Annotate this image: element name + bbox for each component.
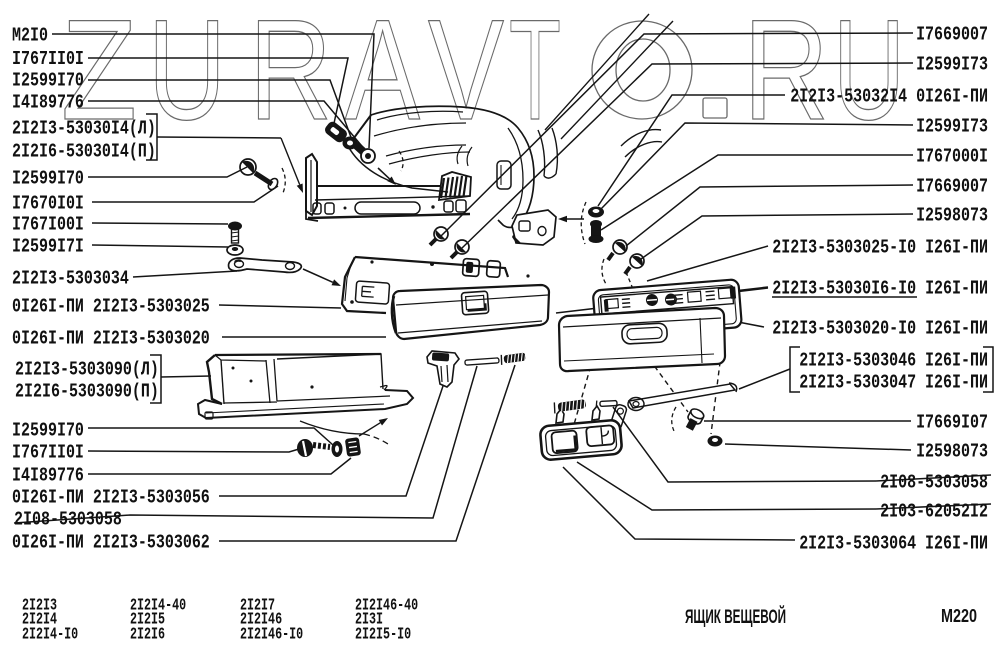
svg-text:I4I89776: I4I89776 (12, 466, 84, 487)
svg-text:U: U (148, 0, 226, 150)
svg-text:I7670I0I: I7670I0I (12, 194, 84, 215)
svg-text:2I2I6-53030I4(П): 2I2I6-53030I4(П) (12, 142, 156, 163)
svg-text:М2I0: М2I0 (12, 26, 48, 47)
svg-text:ЯЩИК ВЕЩЕВОЙ: ЯЩИК ВЕЩЕВОЙ (685, 605, 786, 628)
svg-text:0I26I-ПИ 2I2I3-5303020: 0I26I-ПИ 2I2I3-5303020 (12, 329, 210, 350)
svg-text:I767II0I: I767II0I (12, 443, 84, 464)
svg-text:2I2I4-I0: 2I2I4-I0 (22, 626, 78, 644)
svg-text:I2599I73: I2599I73 (916, 55, 988, 76)
svg-text:I7669007: I7669007 (916, 177, 988, 198)
svg-text:I2599I73: I2599I73 (916, 117, 988, 138)
svg-text:М220: М220 (941, 605, 977, 627)
svg-text:I767I00I: I767I00I (12, 215, 84, 236)
svg-text:V: V (428, 0, 504, 150)
svg-text:I4I89776: I4I89776 (12, 93, 84, 114)
svg-text:I767000I: I767000I (916, 147, 988, 168)
svg-text:I2599I70: I2599I70 (12, 169, 84, 190)
svg-text:2I2I5-I0: 2I2I5-I0 (355, 626, 411, 644)
svg-text:I2599I7I: I2599I7I (12, 237, 84, 258)
svg-text:I7669I07: I7669I07 (916, 413, 988, 434)
svg-text:0I26I-ПИ 2I2I3-5303062: 0I26I-ПИ 2I2I3-5303062 (12, 533, 210, 554)
svg-text:2I2I46-I0: 2I2I46-I0 (240, 626, 303, 644)
svg-text:2I2I3-5303064 I26I-ПИ: 2I2I3-5303064 I26I-ПИ (799, 534, 988, 555)
svg-text:I767II0I: I767II0I (12, 49, 84, 70)
svg-text:2I03-62052I2: 2I03-62052I2 (880, 502, 988, 523)
svg-text:0I26I-ПИ 2I2I3-5303025: 0I26I-ПИ 2I2I3-5303025 (12, 297, 210, 318)
svg-text:I2599I70: I2599I70 (12, 421, 84, 442)
svg-text:I2598073: I2598073 (916, 206, 988, 227)
svg-text:U: U (833, 0, 905, 150)
svg-text:I2599I70: I2599I70 (12, 71, 84, 92)
svg-text:2I2I3-5303020-I0 I26I-ПИ: 2I2I3-5303020-I0 I26I-ПИ (772, 319, 988, 340)
svg-text:2I2I3-5303025-I0 I26I-ПИ: 2I2I3-5303025-I0 I26I-ПИ (772, 238, 988, 259)
svg-text:2I2I6: 2I2I6 (130, 626, 165, 644)
svg-text:I7669007: I7669007 (916, 25, 988, 46)
svg-text:2I2I3-53032I4 0I26I-ПИ: 2I2I3-53032I4 0I26I-ПИ (790, 87, 988, 108)
svg-text:2I2I3-5303047 I26I-ПИ: 2I2I3-5303047 I26I-ПИ (799, 373, 988, 394)
svg-text:I2598073: I2598073 (916, 442, 988, 463)
svg-text:2I2I3-5303034: 2I2I3-5303034 (12, 269, 129, 290)
svg-text:R: R (743, 0, 829, 150)
svg-text:2I08-5303058: 2I08-5303058 (14, 510, 122, 531)
svg-text:2I08-5303058: 2I08-5303058 (880, 473, 988, 494)
svg-text:2I2I3-5303090(Л): 2I2I3-5303090(Л) (15, 360, 159, 381)
svg-text:2I2I6-5303090(П): 2I2I6-5303090(П) (15, 382, 159, 403)
svg-text:R: R (249, 0, 332, 150)
svg-text:2I2I3-5303046 I26I-ПИ: 2I2I3-5303046 I26I-ПИ (799, 351, 988, 372)
svg-text:2I2I3-53030I4(Л): 2I2I3-53030I4(Л) (12, 119, 156, 140)
svg-text:0I26I-ПИ 2I2I3-5303056: 0I26I-ПИ 2I2I3-5303056 (12, 488, 210, 509)
